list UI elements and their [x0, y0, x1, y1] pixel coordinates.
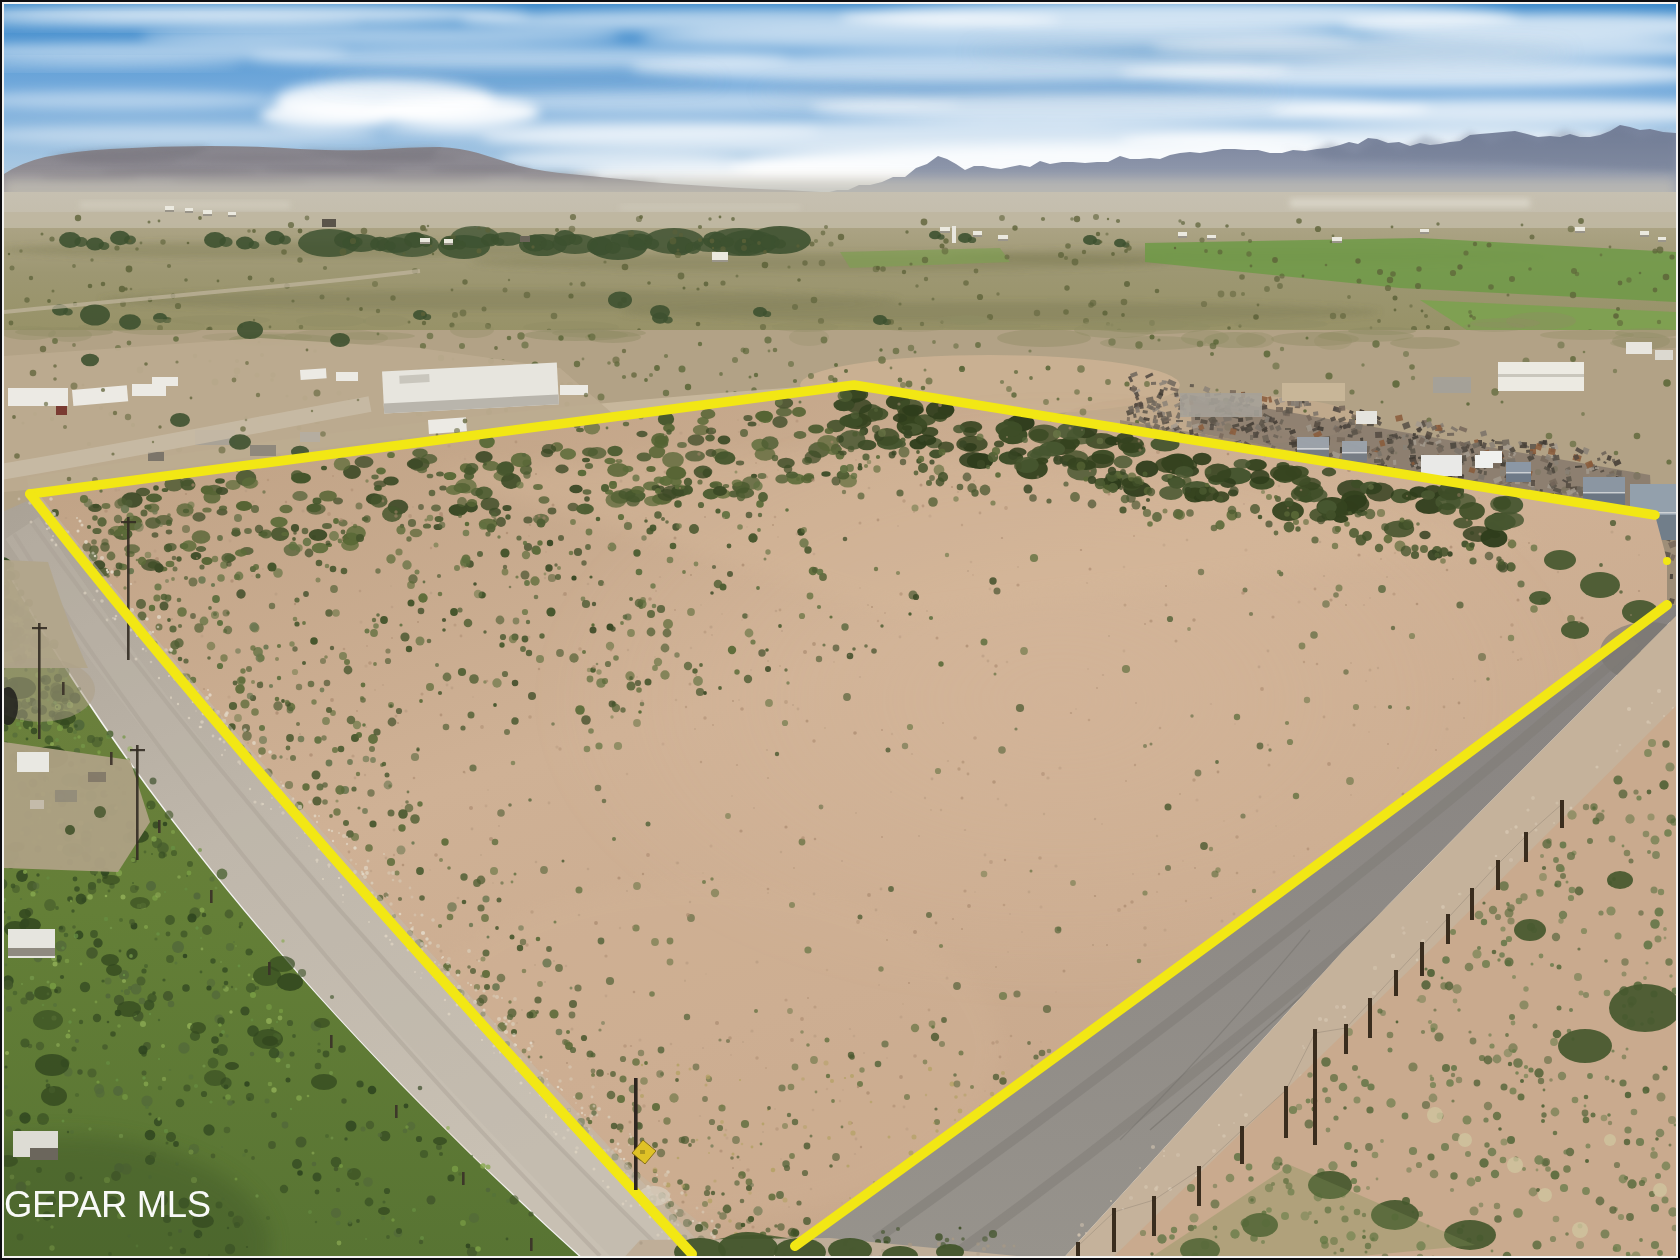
svg-text:GEPAR MLS: GEPAR MLS: [4, 1184, 211, 1225]
